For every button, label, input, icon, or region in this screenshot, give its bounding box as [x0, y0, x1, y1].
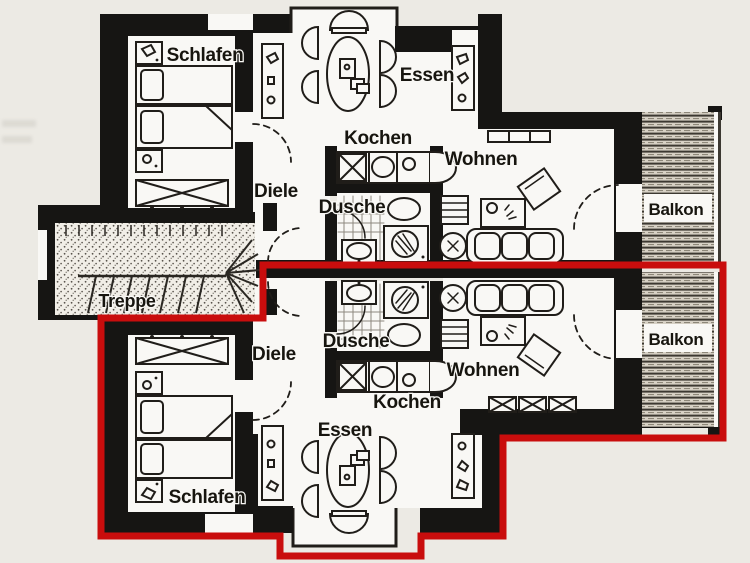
stairwell-treppe — [55, 223, 260, 315]
balkon-lower — [642, 272, 721, 427]
label-upper-diele: Diele — [254, 181, 298, 202]
floorplan-page: Schlafen Essen Kochen Diele Dusche Wohne… — [0, 0, 750, 563]
floorplan-drawing: Schlafen Essen Kochen Diele Dusche Wohne… — [0, 0, 750, 563]
label-upper-balkon: Balkon — [649, 200, 704, 219]
label-upper-kochen: Kochen — [344, 128, 412, 149]
label-upper-essen: Essen — [400, 65, 454, 86]
label-upper-schlafen: Schlafen — [167, 45, 244, 66]
label-lower-balkon: Balkon — [649, 330, 704, 349]
label-lower-dusche: Dusche — [323, 331, 390, 352]
balkon-upper — [642, 112, 721, 265]
label-upper-wohnen: Wohnen — [445, 149, 518, 170]
label-lower-kochen: Kochen — [373, 392, 441, 413]
label-lower-wohnen: Wohnen — [447, 360, 520, 381]
label-upper-dusche: Dusche — [319, 197, 386, 218]
label-lower-essen: Essen — [318, 420, 372, 441]
label-lower-schlafen: Schlafen — [169, 487, 246, 508]
label-lower-diele: Diele — [252, 344, 296, 365]
label-treppe: Treppe — [98, 291, 156, 311]
